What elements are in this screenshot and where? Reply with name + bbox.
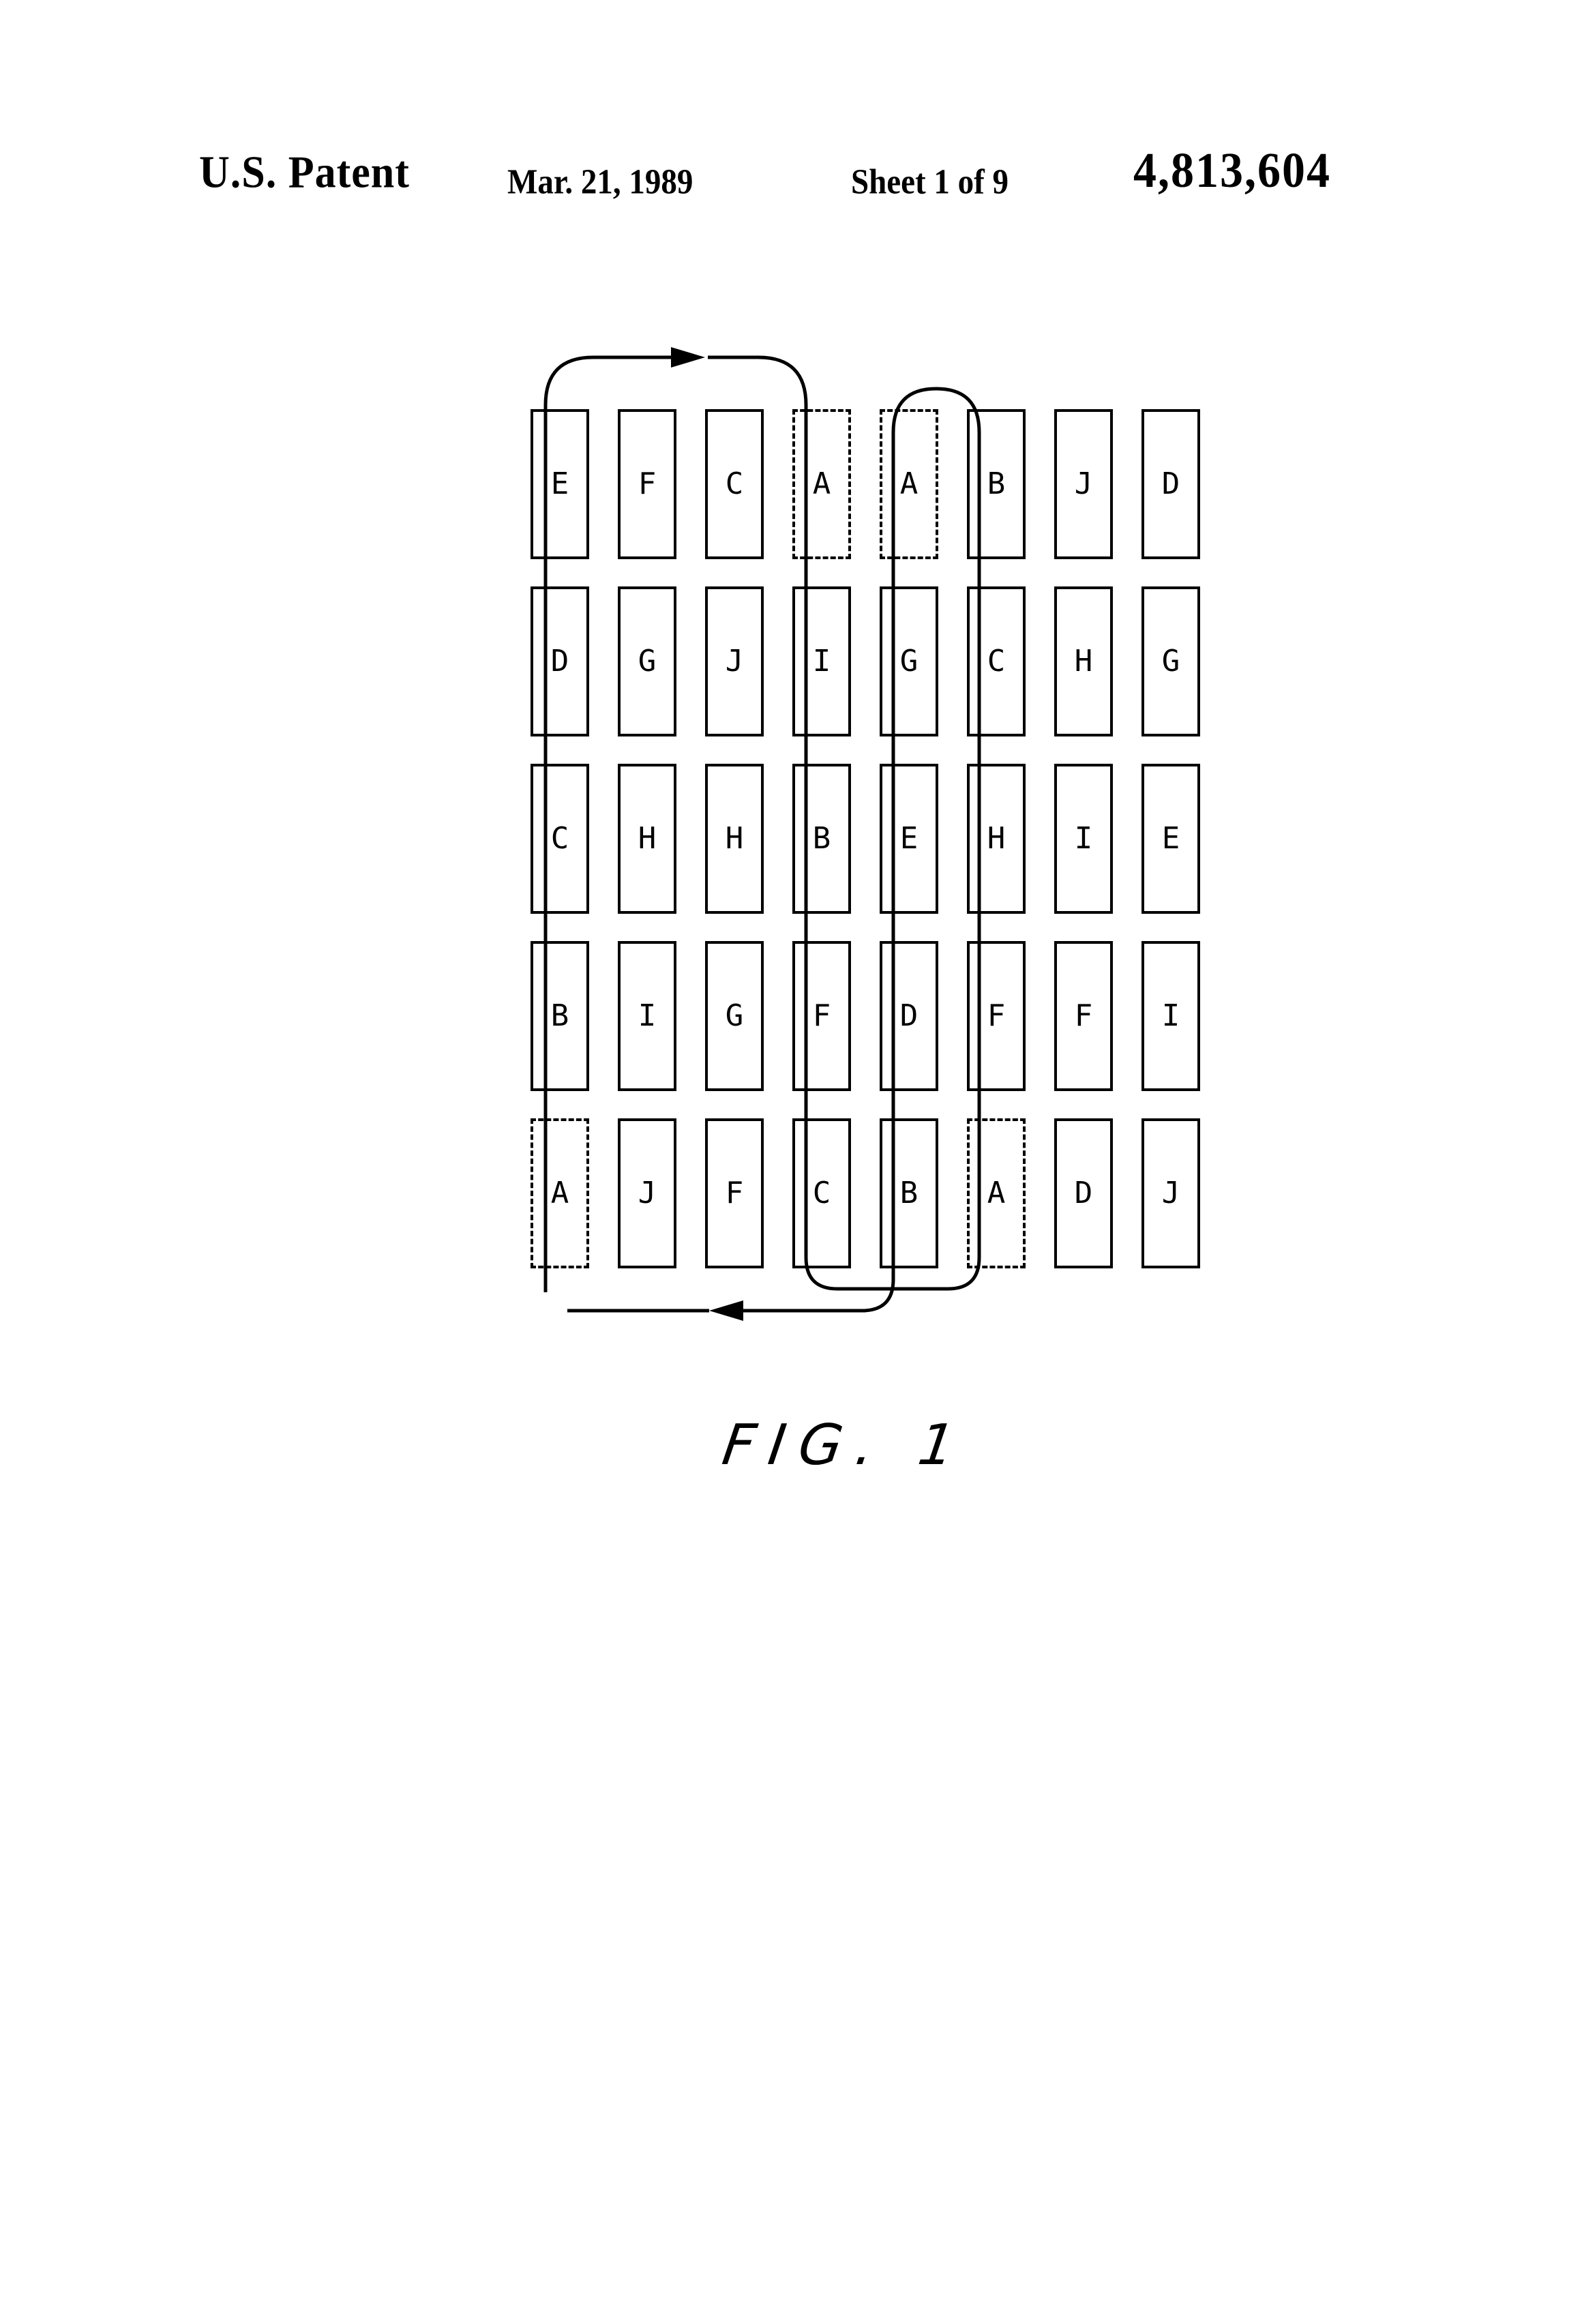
card-c-13: C [967,586,1026,736]
card-j-33: J [618,1118,676,1268]
card-i-25: I [618,941,676,1091]
card-a-32-dashed: A [531,1118,589,1268]
card-h-21: H [967,764,1026,914]
card-h-17: H [618,764,676,914]
card-f-30: F [1054,941,1113,1091]
card-d-8: D [531,586,589,736]
card-j-10: J [705,586,764,736]
card-c-2: C [705,409,764,559]
card-i-31: I [1141,941,1200,1091]
arrow-left-icon [709,1300,743,1321]
card-b-19: B [792,764,851,914]
card-e-23: E [1141,764,1200,914]
card-f-29: F [967,941,1026,1091]
card-i-11: I [792,586,851,736]
card-b-5: B [967,409,1026,559]
card-j-6: J [1054,409,1113,559]
card-b-24: B [531,941,589,1091]
arrow-right-icon [671,347,705,368]
card-a-37-dashed: A [967,1118,1026,1268]
card-a-4-dashed: A [880,409,938,559]
card-c-35: C [792,1118,851,1268]
publication-date: Mar. 21, 1989 [507,162,693,202]
card-b-36: B [880,1118,938,1268]
card-g-26: G [705,941,764,1091]
sheet-number: Sheet 1 of 9 [851,162,1009,202]
card-g-15: G [1141,586,1200,736]
patent-number: 4,813,604 [1133,141,1331,199]
card-d-38: D [1054,1118,1113,1268]
card-h-18: H [705,764,764,914]
card-i-22: I [1054,764,1113,914]
card-grid: EFCAABJDDGJIGCHGCHHBEHIEBIGFDFFIAJFCBADJ [531,409,1200,1268]
card-f-34: F [705,1118,764,1268]
card-j-39: J [1141,1118,1200,1268]
patent-sheet-page: U.S. Patent Mar. 21, 1989 Sheet 1 of 9 4… [0,0,1582,2324]
card-d-28: D [880,941,938,1091]
card-e-20: E [880,764,938,914]
card-a-3-dashed: A [792,409,851,559]
card-h-14: H [1054,586,1113,736]
card-e-0: E [531,409,589,559]
card-g-12: G [880,586,938,736]
card-f-1: F [618,409,676,559]
card-f-27: F [792,941,851,1091]
card-g-9: G [618,586,676,736]
figure-caption: FIG. 1 [698,1413,993,1478]
publication-title: U.S. Patent [199,147,410,199]
card-d-7: D [1141,409,1200,559]
card-c-16: C [531,764,589,914]
